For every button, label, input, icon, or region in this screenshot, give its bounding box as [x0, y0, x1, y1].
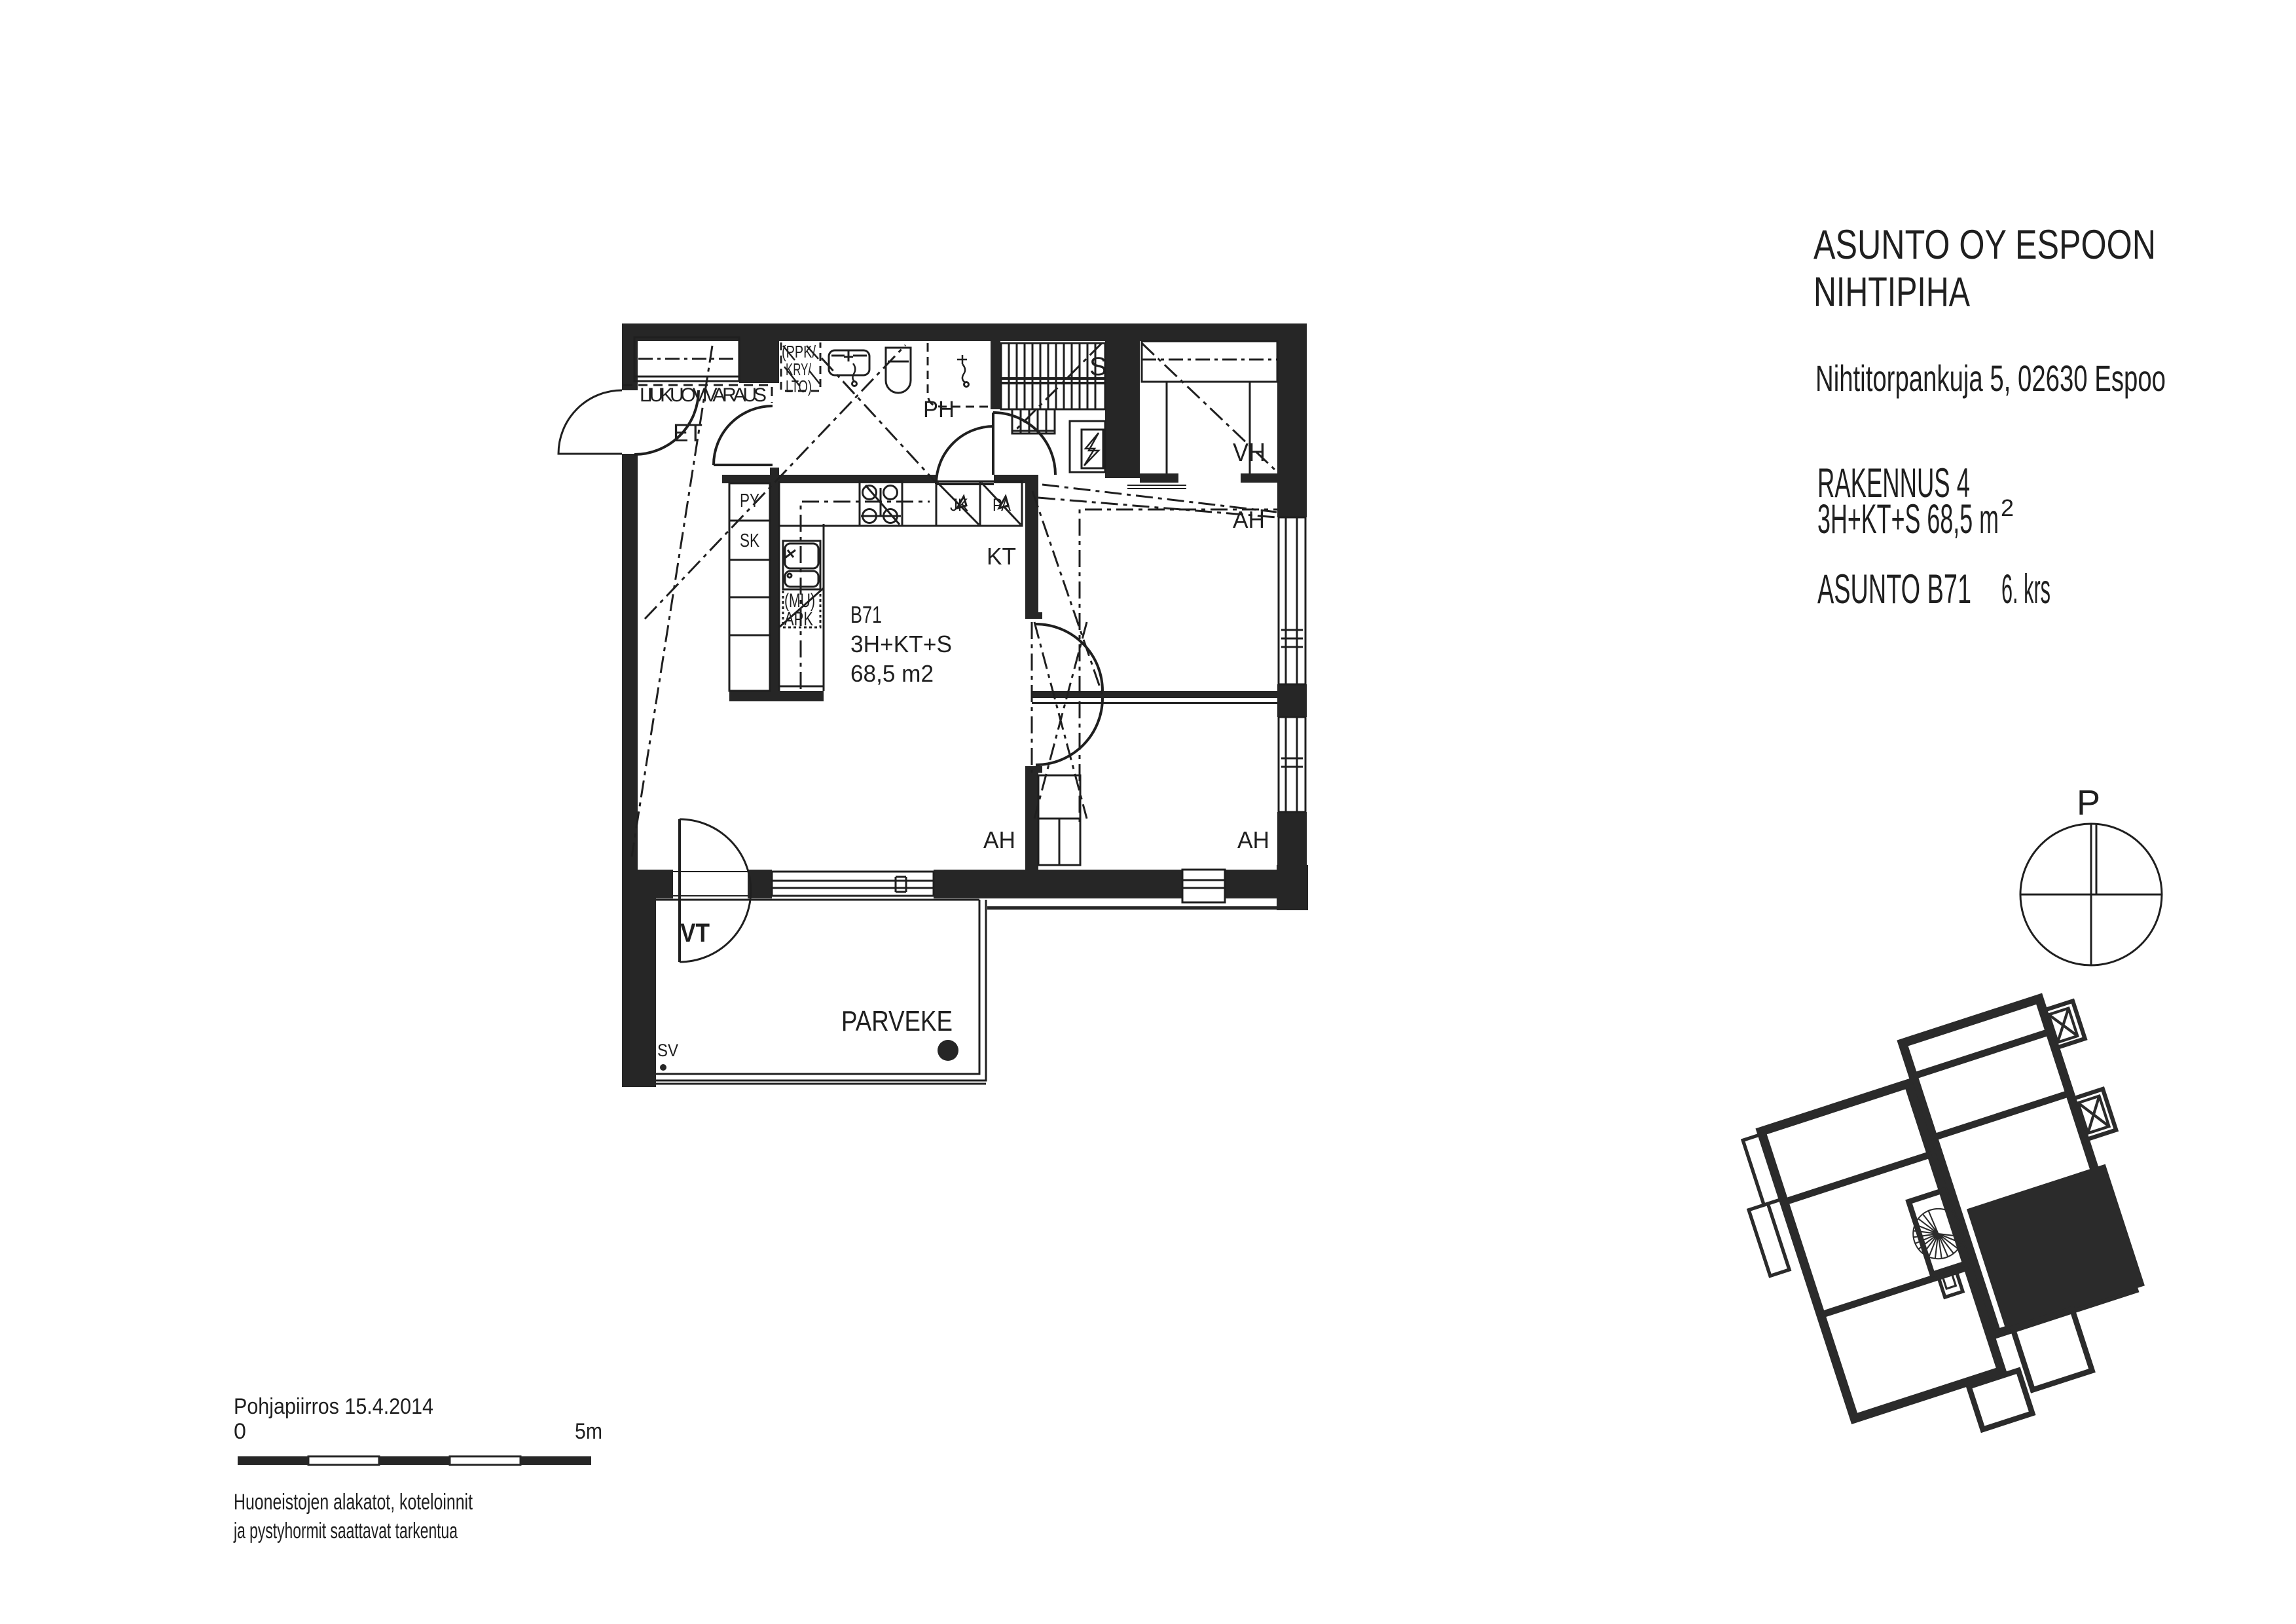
svg-text:PA: PA — [993, 495, 1011, 515]
svg-text:APK: APK — [784, 608, 813, 630]
svg-text:JK: JK — [950, 495, 968, 515]
svg-text:NIHTIPIHA: NIHTIPIHA — [1813, 269, 1970, 315]
svg-text:PARVEKE: PARVEKE — [841, 1005, 953, 1037]
svg-text:Pohjapiirros 15.4.2014: Pohjapiirros 15.4.2014 — [234, 1394, 433, 1419]
svg-text:Nihtitorpankuja 5, 02630 Espoo: Nihtitorpankuja 5, 02630 Espoo — [1815, 358, 2166, 399]
svg-text:LIUKUOVIVARAUS: LIUKUOVIVARAUS — [640, 384, 767, 406]
svg-text:LTO): LTO) — [786, 377, 812, 396]
svg-text:2: 2 — [2001, 494, 2014, 521]
svg-text:B71: B71 — [850, 601, 882, 628]
svg-text:0: 0 — [234, 1419, 246, 1444]
svg-text:VH: VH — [1233, 439, 1266, 467]
svg-text:Huoneistojen alakatot, koteloi: Huoneistojen alakatot, koteloinnit — [234, 1490, 473, 1515]
svg-text:P: P — [2077, 783, 2100, 822]
svg-text:ASUNTO B71: ASUNTO B71 — [1817, 566, 1971, 612]
svg-text:6. krs: 6. krs — [2001, 566, 2050, 612]
svg-text:AH: AH — [983, 826, 1015, 853]
svg-text:ET: ET — [673, 420, 702, 447]
svg-text:ja pystyhormit saattavat tarke: ja pystyhormit saattavat tarkentua — [233, 1519, 458, 1543]
svg-text:68,5 m2: 68,5 m2 — [850, 660, 934, 687]
svg-text:ASUNTO OY ESPOON: ASUNTO OY ESPOON — [1813, 222, 2156, 268]
svg-text:SK: SK — [740, 530, 760, 551]
svg-text:S: S — [1089, 352, 1107, 381]
svg-text:KT: KT — [987, 543, 1016, 570]
svg-text:AH: AH — [1233, 506, 1265, 533]
svg-text:(PPK/: (PPK/ — [782, 342, 816, 361]
svg-text:AH: AH — [1237, 826, 1269, 853]
svg-text:3H+KT+S: 3H+KT+S — [850, 631, 952, 657]
svg-text:SV: SV — [657, 1041, 678, 1060]
svg-text:PH: PH — [923, 397, 955, 422]
svg-text:VT: VT — [680, 919, 710, 948]
svg-text:5m: 5m — [575, 1419, 602, 1444]
svg-text:PY: PY — [740, 490, 759, 511]
svg-text:3H+KT+S 68,5 m: 3H+KT+S 68,5 m — [1817, 496, 1999, 542]
